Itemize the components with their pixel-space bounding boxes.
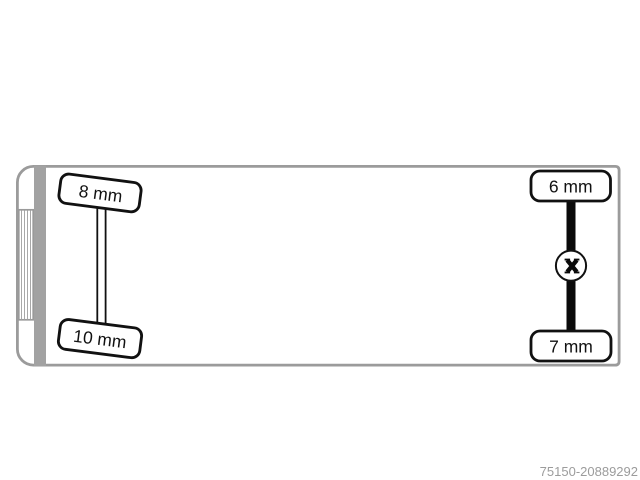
svg-text:75150-20889292: 75150-20889292	[540, 464, 638, 479]
svg-text:7 mm: 7 mm	[549, 337, 593, 357]
svg-text:6 mm: 6 mm	[549, 177, 593, 197]
